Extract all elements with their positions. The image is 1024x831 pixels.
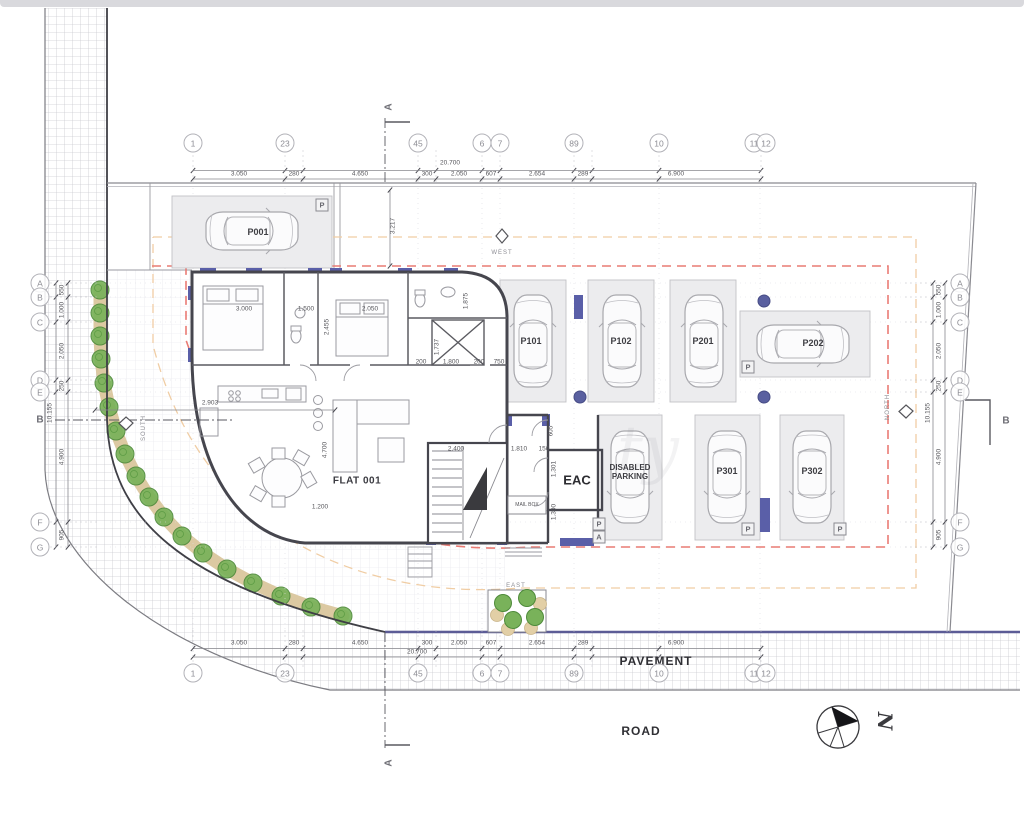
section-a-bottom-label: A [384,759,395,766]
orientation-label: EAST [506,583,526,589]
dim-label: 4.900 [59,449,66,465]
parking-stall-label: P202 [802,338,823,348]
dim-label: 607 [486,640,497,647]
dim-label: 3.050 [231,171,247,178]
right-overall-dim: 10.155 [925,403,932,423]
grid-bubble: 12 [757,134,776,153]
dim-label: 280 [289,640,300,647]
grid-bubble: 10 [650,664,669,683]
grid-bubble: E [951,383,970,402]
left-overall-dim: 10.155 [47,403,54,423]
grid-bubble: F [31,513,50,532]
road-label: ROAD [621,724,660,738]
grid-bubble: 45 [409,664,428,683]
interior-dim-label: 2.050 [362,306,378,313]
parking-sign-marker: P [316,199,329,212]
dim-label: 2.050 [59,343,66,359]
parking-stall-label: P102 [610,336,631,346]
parking-sign-marker: P [742,361,755,374]
dim-label: 2.050 [451,171,467,178]
grid-bubble: 12 [757,664,776,683]
bottom-overall-dim: 20.700 [407,649,427,656]
section-a-top-label: A [384,103,395,110]
top-overall-dim: 20.700 [440,160,460,167]
parking-sign-marker: A [593,531,606,544]
dim-label: 550 [936,285,943,296]
parking-sign-marker: P [834,523,847,536]
grid-bubble: 6 [473,664,492,683]
interior-dim-label: 150 [539,446,550,453]
car-icon [704,431,750,523]
section-b-right-label: B [1002,416,1009,427]
dim-label: 2.654 [529,640,545,647]
interior-dim-label: 1.500 [298,306,314,313]
site-plan: FLAT 001 EAC MAIL BOX PAVEMENT ROAD ty N… [0,0,1024,831]
dim-label: 6.900 [668,171,684,178]
dim-label: 905 [59,530,66,541]
dim-label: 250 [59,381,66,392]
grid-bubble: 23 [276,134,295,153]
grid-bubble: 6 [473,134,492,153]
car-icon [789,431,835,523]
dim-label: 2.050 [451,640,467,647]
parking-sign-marker: P [593,518,606,531]
dim-label: 1.000 [936,302,943,318]
grid-bubble: 89 [565,134,584,153]
dim-label: 607 [486,171,497,178]
grid-bubble: 7 [491,134,510,153]
grid-bubble: 23 [276,664,295,683]
dim-label: 289 [578,640,589,647]
dim-label: 1.000 [59,302,66,318]
interior-dim-label: 1.300 [551,504,558,520]
disabled-parking-label: DISABLED PARKING [603,463,657,481]
dim-label: 905 [936,530,943,541]
dim-label: 250 [936,381,943,392]
grid-bubble: F [951,513,970,532]
parking-stall-label: P301 [716,466,737,476]
interior-dim-label: 200 [474,359,485,366]
orientation-label: WEST [491,250,512,256]
grid-bubble: C [951,313,970,332]
grid-bubble: G [951,538,970,557]
grid-bubble: B [951,288,970,307]
dim-label: 3.050 [231,640,247,647]
grid-bubble: G [31,538,50,557]
interior-dim-label: 1.800 [443,359,459,366]
dim-label: 6.900 [668,640,684,647]
orientation-label: SOUTH [141,415,147,441]
dim-label: 300 [422,171,433,178]
dim-label: 550 [59,285,66,296]
compass-north-letter: N [873,712,897,730]
interior-dim-label: 750 [494,359,505,366]
grid-bubble: C [31,313,50,332]
dim-label: 2.050 [936,343,943,359]
interior-dim-label: 4.700 [322,442,329,458]
dim-label: 280 [289,171,300,178]
parking-stall-label: P001 [247,227,268,237]
dim-label: 4.650 [352,171,368,178]
grid-bubble: 45 [409,134,428,153]
interior-dim-label: 2.455 [324,319,331,335]
grid-bubble: 1 [184,134,203,153]
grid-bubble: 10 [650,134,669,153]
parking-sign-marker: P [742,523,755,536]
flat-label: FLAT 001 [333,476,381,487]
parking-stall-label: P101 [520,336,541,346]
interior-dim-label: 1.737 [434,339,441,355]
grid-bubble: E [31,383,50,402]
grid-bubble: 7 [491,664,510,683]
dim-label: 4.900 [936,449,943,465]
interior-dim-label: 605 [548,426,555,437]
dim-label: 4.650 [352,640,368,647]
mailbox-label: MAIL BOX [515,502,538,508]
interior-dim-label: 2.903 [202,400,218,407]
parking-stall-label: P302 [801,466,822,476]
interior-dim-label: 3.217 [390,218,397,234]
interior-dim-label: 1.875 [463,293,470,309]
interior-dim-label: 3.000 [236,306,252,313]
garden-patch [488,590,547,636]
north-compass-icon [812,701,864,753]
parking-stall-label: P201 [692,336,713,346]
eac-label: EAC [563,473,590,488]
dim-label: 2.654 [529,171,545,178]
dim-label: 300 [422,640,433,647]
site-plan-drawing [0,0,1024,831]
grid-bubble: 1 [184,664,203,683]
interior-dim-label: 2.400 [448,446,464,453]
grid-bubble: B [31,288,50,307]
interior-dim-label: 1.200 [312,504,328,511]
dim-label: 289 [578,171,589,178]
grid-bubble: 89 [565,664,584,683]
interior-dim-label: 200 [416,359,427,366]
section-b-left-label: B [36,415,43,426]
interior-dim-label: 1.810 [511,446,527,453]
orientation-label: NORTH [885,394,891,420]
interior-dim-label: 1.301 [551,461,558,477]
